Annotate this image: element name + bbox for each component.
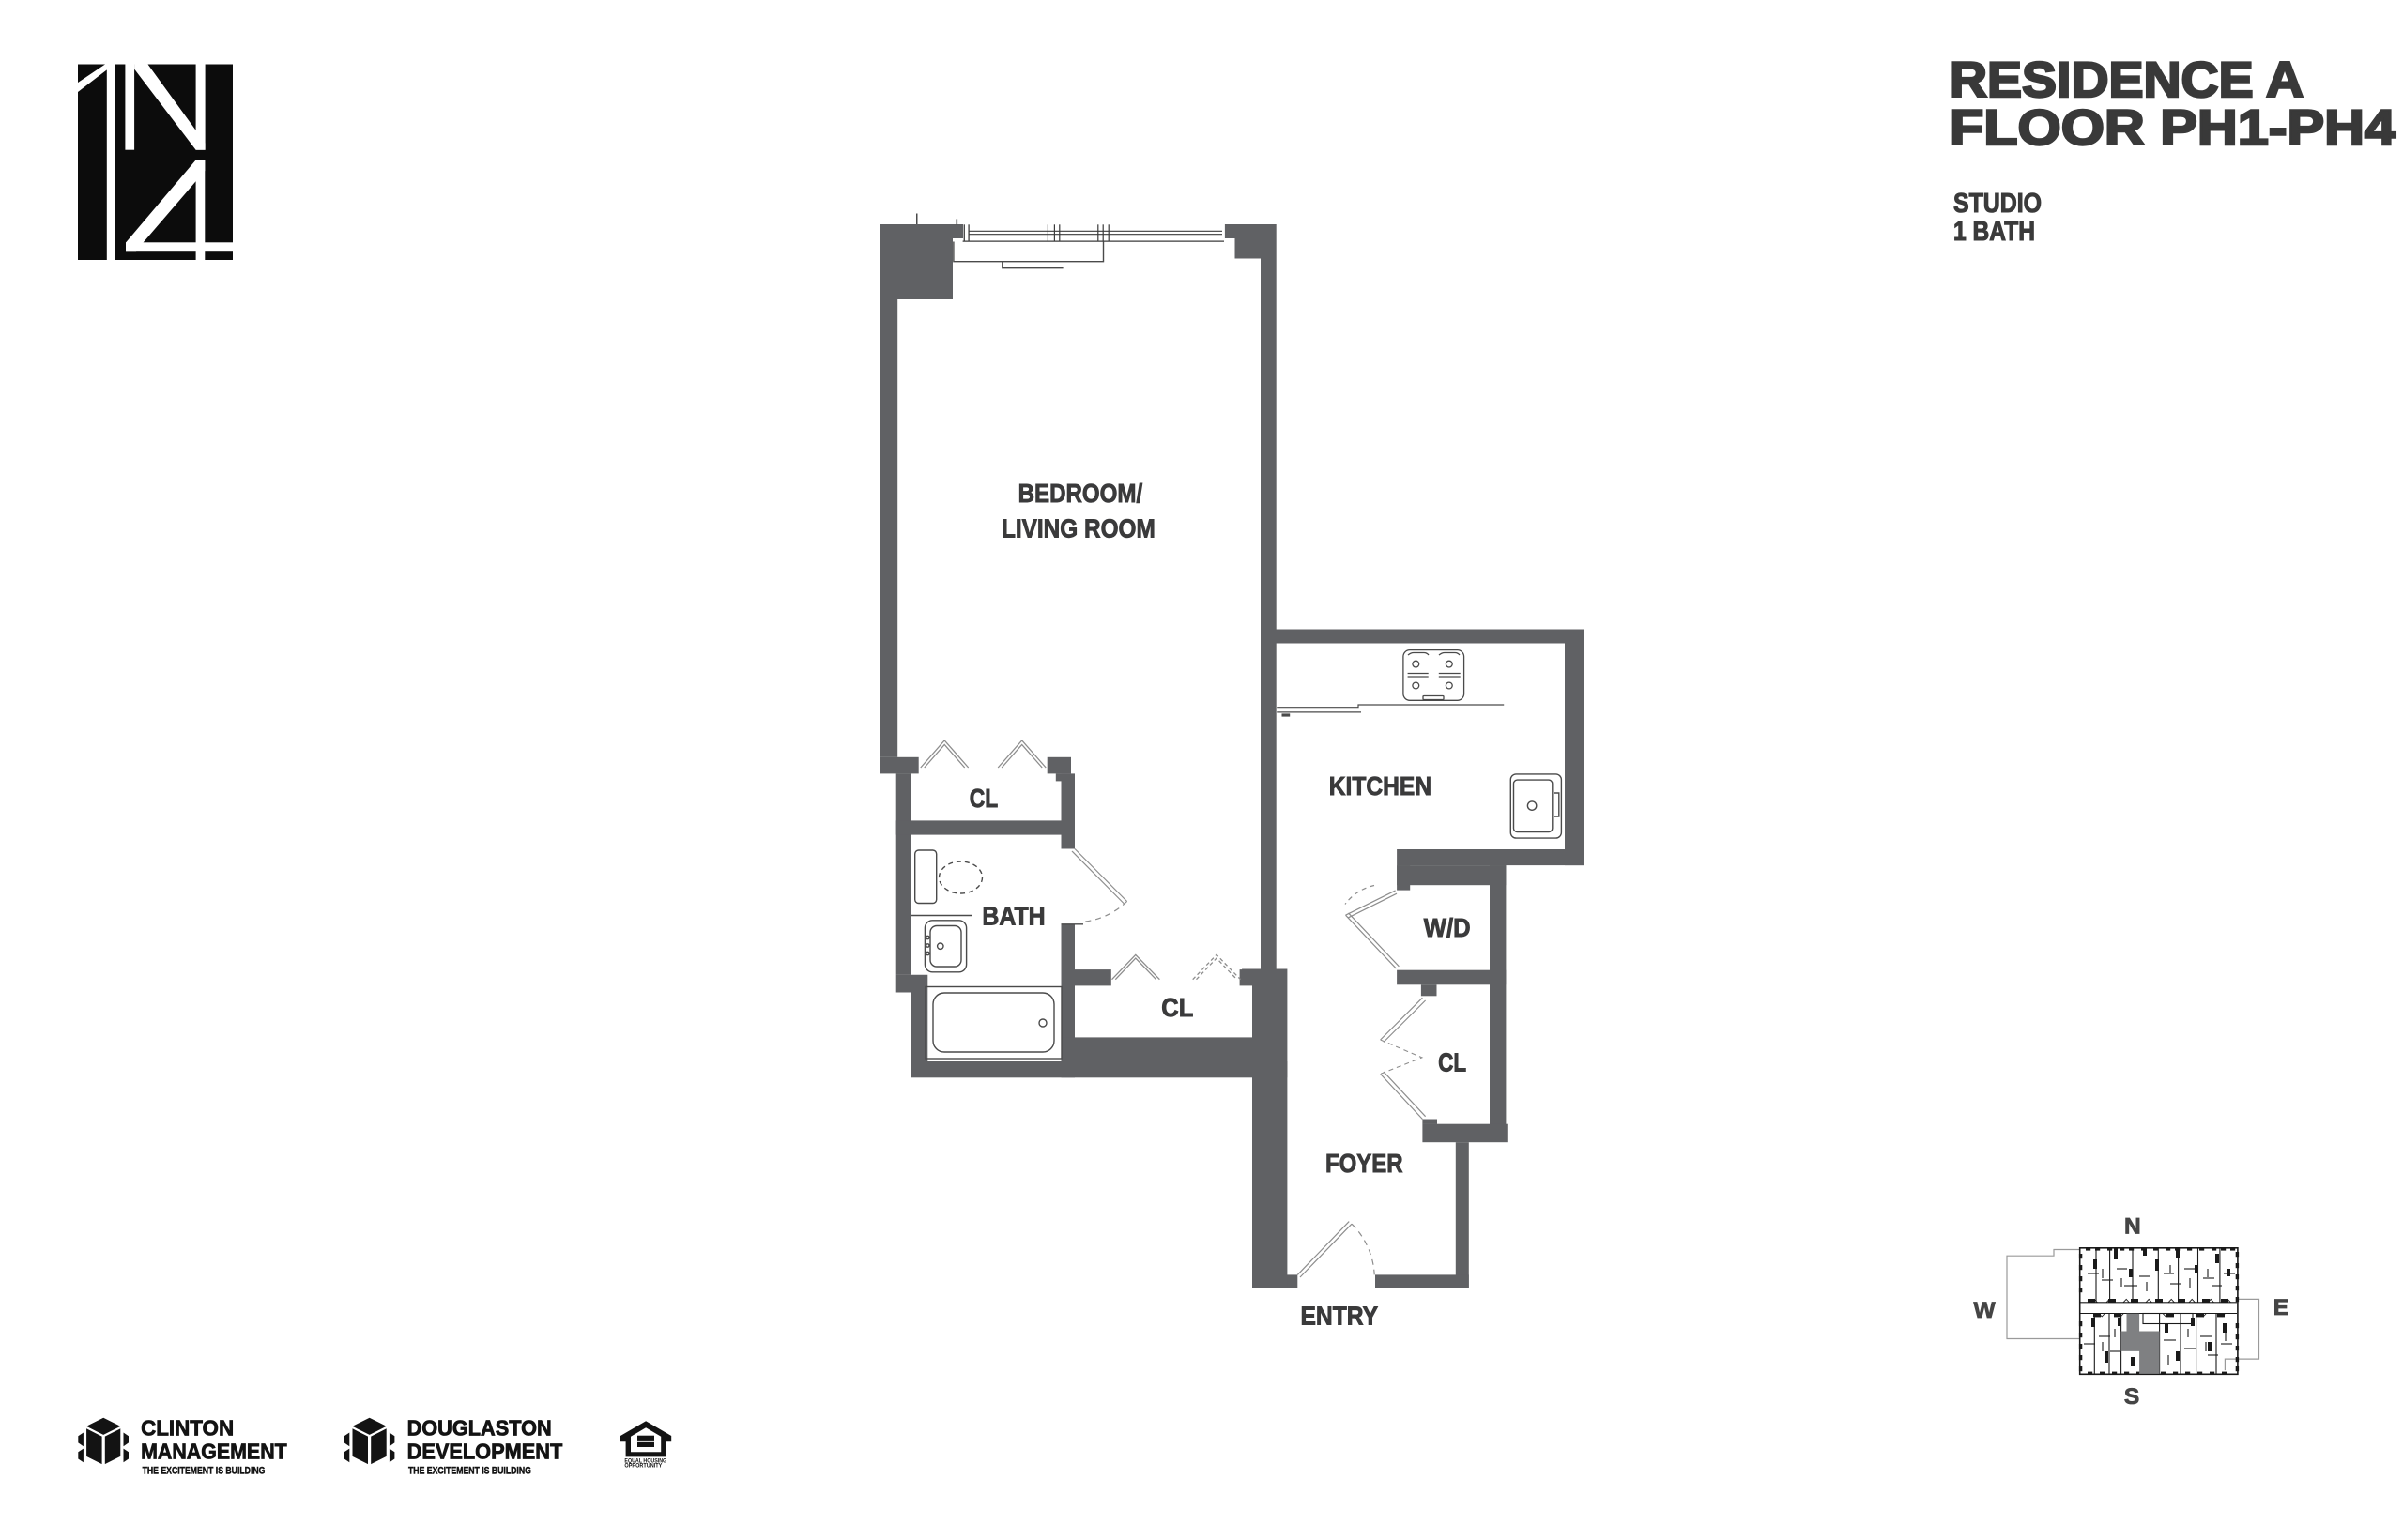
svg-text:BEDROOM/: BEDROOM/ [1018,479,1143,508]
svg-text:CL: CL [1161,993,1193,1022]
svg-text:STUDIO: STUDIO [1953,189,2042,219]
svg-text:W: W [1974,1298,1997,1323]
svg-text:MANAGEMENT: MANAGEMENT [141,1439,287,1463]
svg-text:CLINTON: CLINTON [141,1416,234,1441]
svg-text:THE EXCITEMENT IS BUILDING: THE EXCITEMENT IS BUILDING [143,1465,266,1476]
svg-text:CL: CL [970,784,999,813]
svg-text:FLOOR PH1-PH4: FLOOR PH1-PH4 [1950,100,2396,156]
svg-text:THE EXCITEMENT IS BUILDING: THE EXCITEMENT IS BUILDING [408,1465,531,1476]
svg-text:CL: CL [1438,1048,1466,1077]
svg-text:S: S [2124,1384,2139,1410]
svg-text:W/D: W/D [1424,913,1471,942]
svg-text:1 BATH: 1 BATH [1953,217,2035,247]
svg-text:DOUGLASTON: DOUGLASTON [407,1416,552,1441]
svg-text:N: N [2124,1214,2141,1240]
svg-text:BATH: BATH [982,901,1045,930]
svg-text:ENTRY: ENTRY [1301,1301,1379,1330]
svg-text:DEVELOPMENT: DEVELOPMENT [407,1439,563,1463]
svg-text:FOYER: FOYER [1325,1149,1403,1178]
svg-text:E: E [2273,1295,2288,1320]
svg-text:LIVING ROOM: LIVING ROOM [1002,513,1156,542]
svg-text:KITCHEN: KITCHEN [1329,771,1431,800]
svg-text:OPPORTUNITY: OPPORTUNITY [624,1462,663,1469]
